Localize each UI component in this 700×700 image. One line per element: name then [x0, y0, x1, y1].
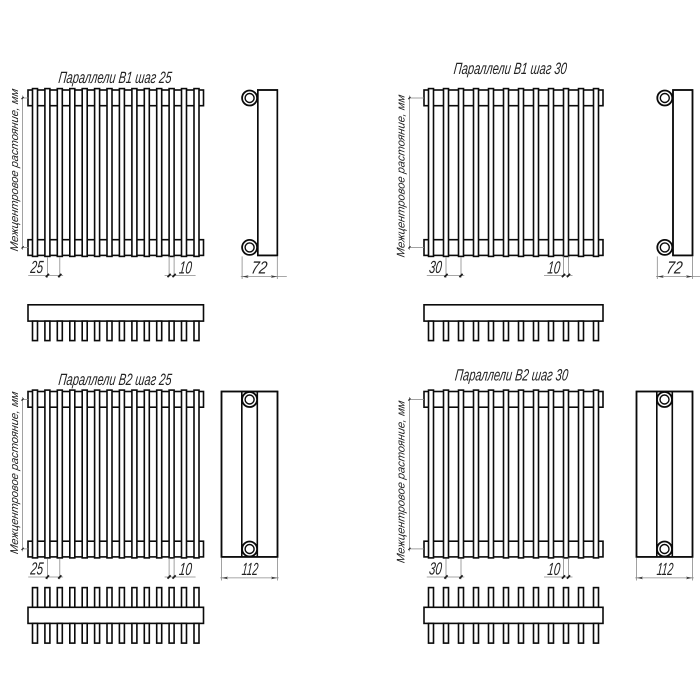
svg-text:Межцентровое растояние, мм: Межцентровое растояние, мм — [396, 93, 408, 258]
svg-text:112: 112 — [656, 560, 674, 579]
svg-text:Параллели В1 шаг 25: Параллели В1 шаг 25 — [58, 68, 173, 87]
svg-text:25: 25 — [29, 259, 45, 278]
svg-text:72: 72 — [665, 258, 684, 278]
svg-text:Параллели В1 шаг 30: Параллели В1 шаг 30 — [453, 59, 568, 78]
svg-text:Параллели В2 шаг 25: Параллели В2 шаг 25 — [58, 370, 173, 389]
svg-text:25: 25 — [29, 560, 45, 579]
svg-text:72: 72 — [250, 258, 269, 278]
svg-text:Межцентровое растояние, мм: Межцентровое растояние, мм — [9, 87, 21, 252]
svg-text:112: 112 — [241, 560, 259, 579]
svg-text:Межцентровое растояние, мм: Межцентровое растояние, мм — [9, 390, 21, 555]
svg-text:Межцентровое растояние, мм: Межцентровое растояние, мм — [396, 399, 408, 564]
svg-text:Параллели В2 шаг 30: Параллели В2 шаг 30 — [454, 365, 569, 384]
